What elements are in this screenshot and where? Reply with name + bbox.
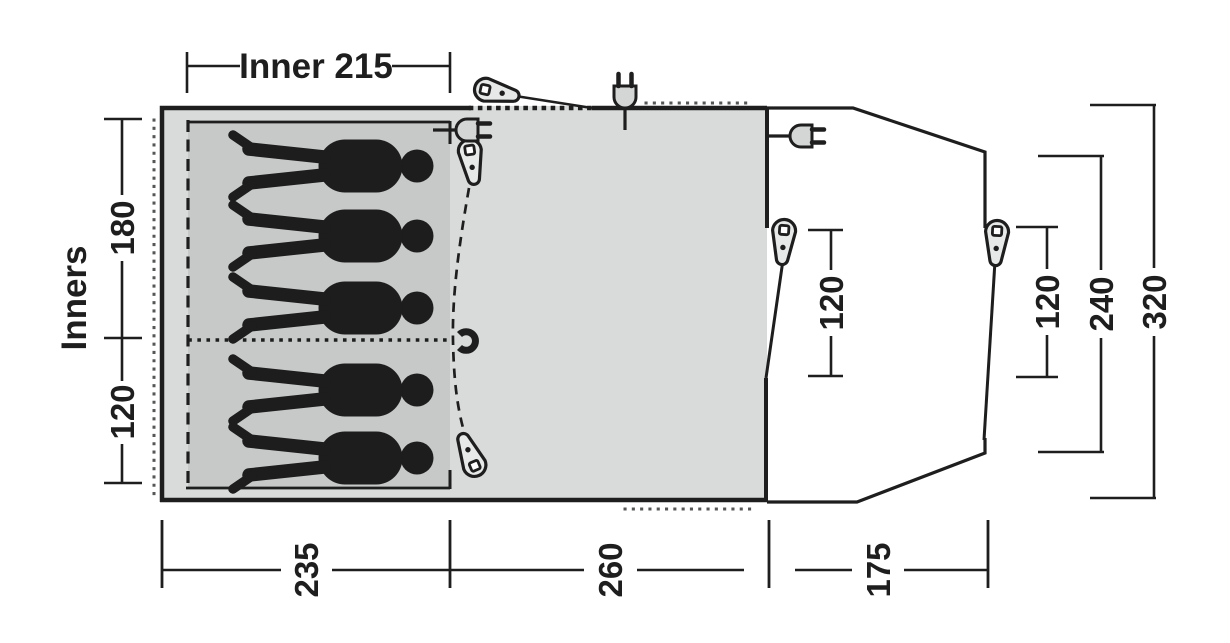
dim-label-inner-215: Inner 215 bbox=[239, 47, 393, 86]
dim-label-240: 240 bbox=[1083, 276, 1120, 331]
tent-floorplan-diagram: Inner 215 180 120 Inners 235 260 175 120… bbox=[0, 0, 1230, 643]
dim-label-175: 175 bbox=[860, 542, 897, 597]
dim-label-120-left: 120 bbox=[104, 384, 141, 439]
dimension-right: 120 240 320 bbox=[1016, 105, 1173, 498]
tent-peg-icon bbox=[984, 220, 1009, 266]
dimension-bottom: 235 260 175 bbox=[162, 520, 988, 598]
floorplan-canvas: Inner 215 180 120 Inners 235 260 175 120… bbox=[0, 0, 1230, 643]
dim-label-320: 320 bbox=[1136, 274, 1173, 329]
dim-label-120-right: 120 bbox=[1029, 274, 1066, 329]
tent-peg-icon bbox=[472, 76, 521, 108]
dimension-inner-width: Inner 215 bbox=[187, 47, 450, 93]
porch-area bbox=[767, 108, 1009, 502]
top-guyline bbox=[472, 76, 592, 108]
inners-label: Inners bbox=[55, 245, 94, 350]
guy-rope-porch bbox=[984, 261, 995, 440]
dimension-left: 180 120 Inners bbox=[55, 119, 142, 483]
dim-label-120-porch: 120 bbox=[813, 275, 850, 330]
dim-label-260: 260 bbox=[592, 542, 629, 597]
dim-label-235: 235 bbox=[288, 542, 325, 597]
dim-label-180: 180 bbox=[104, 200, 141, 255]
